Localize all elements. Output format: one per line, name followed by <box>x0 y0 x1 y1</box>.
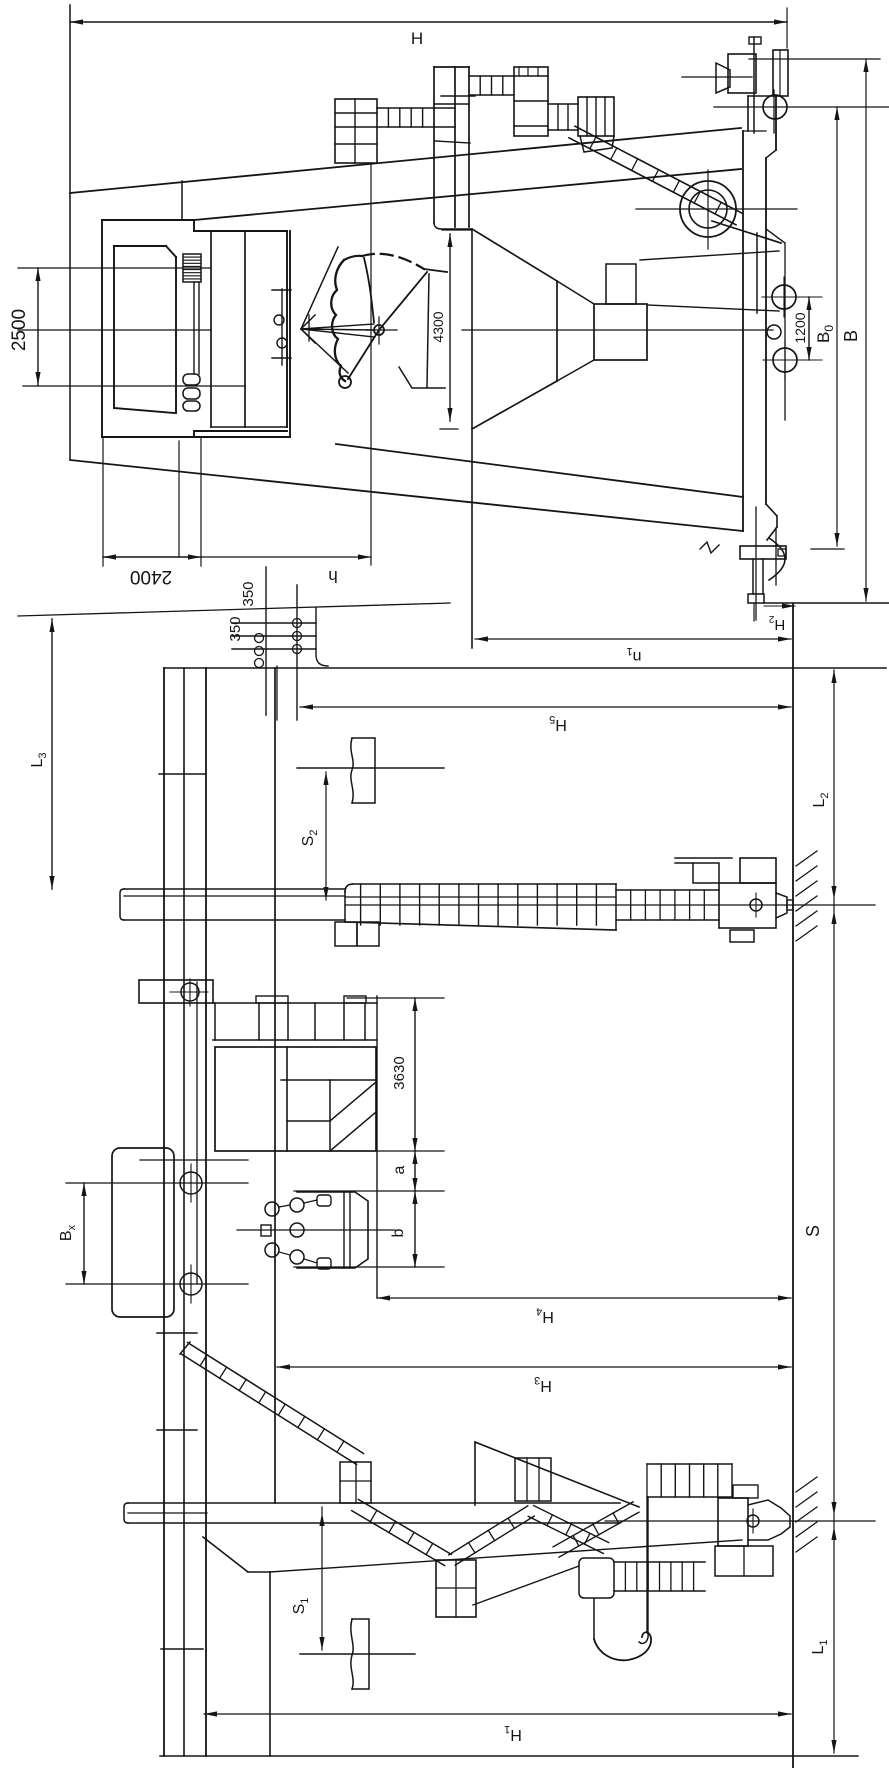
svg-text:2500: 2500 <box>9 309 30 351</box>
svg-text:350: 350 <box>227 616 244 641</box>
svg-text:3630: 3630 <box>391 1056 408 1089</box>
svg-text:H: H <box>411 29 423 48</box>
svg-text:B: B <box>841 330 861 342</box>
svg-text:a: a <box>391 1165 408 1174</box>
svg-text:1200: 1200 <box>792 312 808 343</box>
svg-text:h: h <box>328 567 337 586</box>
svg-text:4300: 4300 <box>430 311 446 342</box>
svg-text:2400: 2400 <box>130 566 172 587</box>
svg-text:S: S <box>803 1225 823 1237</box>
svg-text:350: 350 <box>240 581 257 606</box>
